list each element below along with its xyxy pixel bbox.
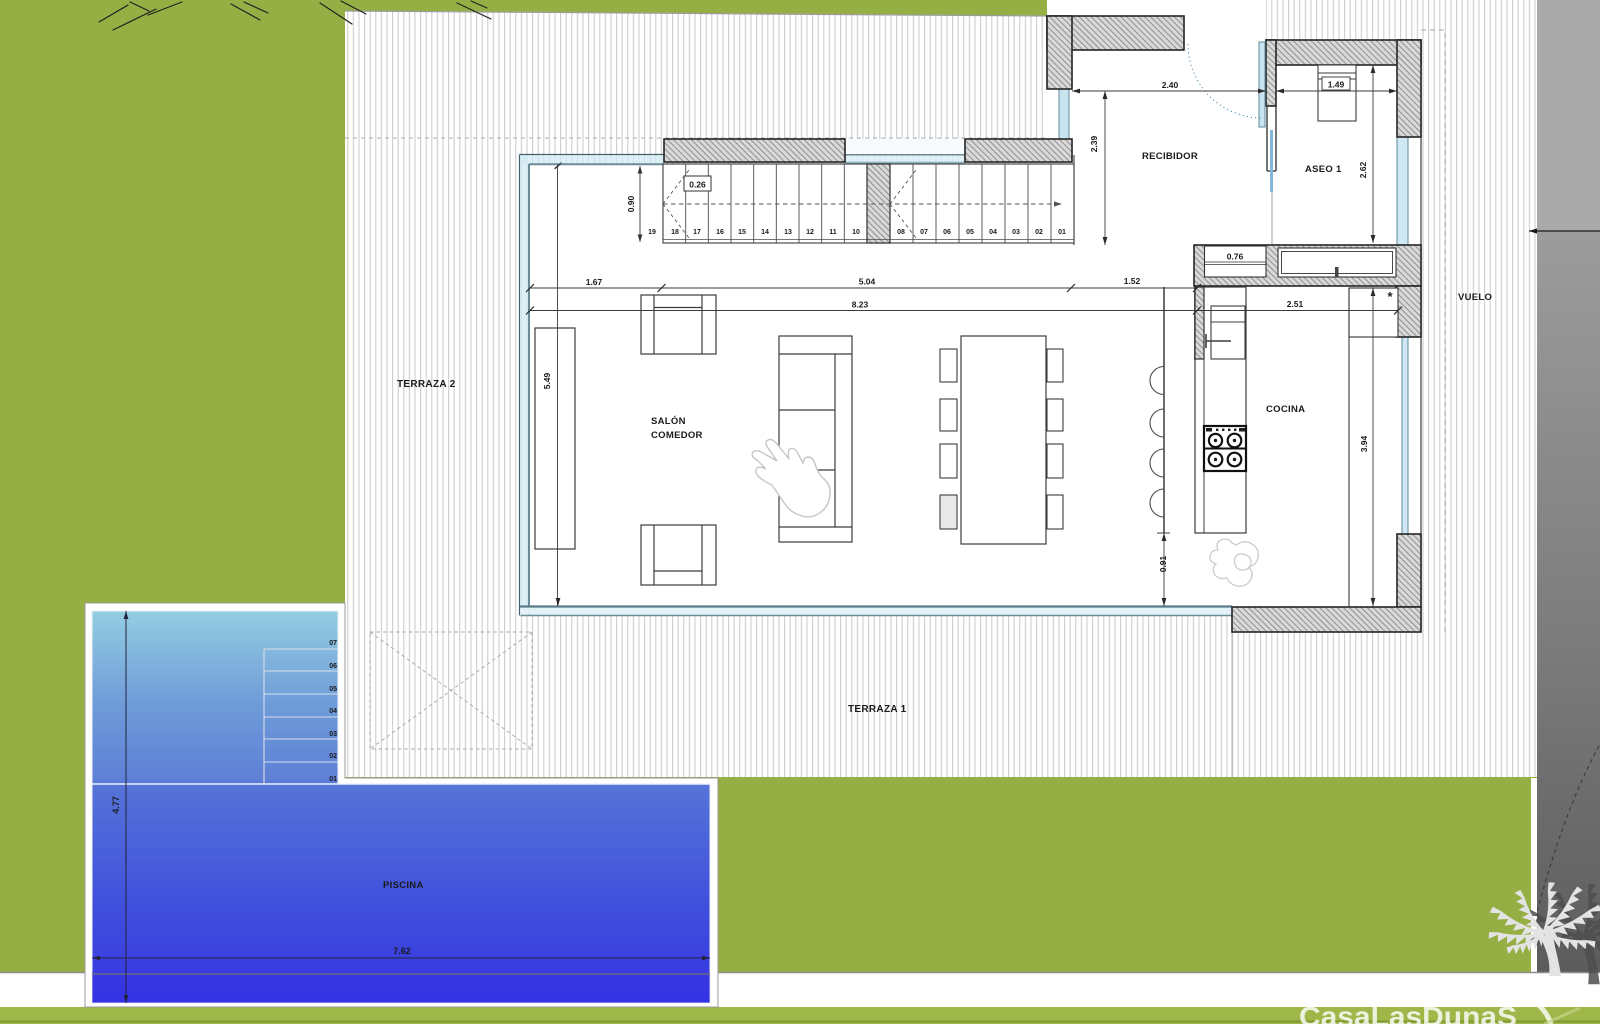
svg-text:1.49: 1.49 <box>1328 80 1345 90</box>
svg-text:COMEDOR: COMEDOR <box>651 430 703 441</box>
svg-text:ASEO 1: ASEO 1 <box>1305 164 1342 175</box>
svg-text:10: 10 <box>852 229 860 236</box>
svg-text:0.91: 0.91 <box>1158 555 1168 572</box>
svg-text:03: 03 <box>329 731 337 738</box>
svg-text:SALÓN: SALÓN <box>651 415 686 427</box>
svg-text:06: 06 <box>329 663 337 670</box>
svg-text:8.23: 8.23 <box>852 300 869 310</box>
svg-text:19: 19 <box>648 229 656 236</box>
svg-text:0.76: 0.76 <box>1227 252 1244 262</box>
svg-text:01: 01 <box>329 776 337 783</box>
svg-text:05: 05 <box>329 686 337 693</box>
svg-text:2.51: 2.51 <box>1287 299 1304 309</box>
svg-text:01: 01 <box>1058 229 1066 236</box>
svg-text:4.77: 4.77 <box>111 796 121 814</box>
svg-text:RECIBIDOR: RECIBIDOR <box>1142 151 1198 162</box>
svg-text:3.94: 3.94 <box>1359 435 1369 452</box>
svg-text:0.26: 0.26 <box>689 180 706 190</box>
svg-text:CasaLasDunaS: CasaLasDunaS <box>1299 1001 1517 1024</box>
svg-text:TERRAZA 1: TERRAZA 1 <box>848 704 907 715</box>
svg-text:TERRAZA 2: TERRAZA 2 <box>397 379 456 390</box>
svg-text:0.90: 0.90 <box>626 195 636 212</box>
svg-text:02: 02 <box>329 753 337 760</box>
svg-text:1.52: 1.52 <box>1124 276 1141 286</box>
svg-text:COCINA: COCINA <box>1266 404 1305 415</box>
svg-text:12: 12 <box>806 229 814 236</box>
svg-text:18: 18 <box>671 229 679 236</box>
svg-text:03: 03 <box>1012 229 1020 236</box>
svg-text:08: 08 <box>897 229 905 236</box>
svg-text:5.04: 5.04 <box>859 277 876 287</box>
svg-text:06: 06 <box>943 229 951 236</box>
svg-text:02: 02 <box>1035 229 1043 236</box>
svg-text:04: 04 <box>329 708 337 715</box>
svg-text:15: 15 <box>738 229 746 236</box>
svg-text:1.67: 1.67 <box>586 277 603 287</box>
svg-text:VUELO: VUELO <box>1458 292 1492 303</box>
svg-text:7.62: 7.62 <box>393 946 411 956</box>
svg-text:04: 04 <box>989 229 997 236</box>
svg-text:11: 11 <box>829 229 837 236</box>
svg-text:14: 14 <box>761 229 769 236</box>
svg-text:2.39: 2.39 <box>1089 135 1099 152</box>
svg-text:17: 17 <box>693 229 701 236</box>
svg-text:2.62: 2.62 <box>1358 161 1368 178</box>
svg-text:5.49: 5.49 <box>542 372 552 389</box>
svg-text:07: 07 <box>920 229 928 236</box>
svg-text:PISCINA: PISCINA <box>383 880 424 891</box>
svg-text:05: 05 <box>966 229 974 236</box>
svg-text:07: 07 <box>329 640 337 647</box>
svg-text:16: 16 <box>716 229 724 236</box>
svg-text:2.40: 2.40 <box>1162 80 1179 90</box>
svg-text:13: 13 <box>784 229 792 236</box>
